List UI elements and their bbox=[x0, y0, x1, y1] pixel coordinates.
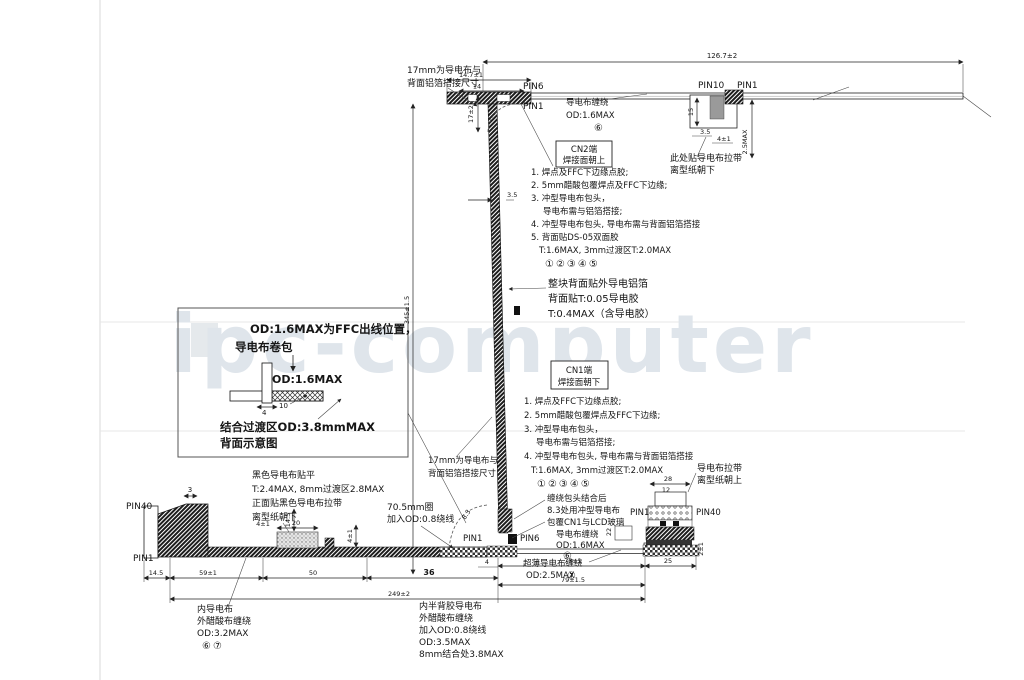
top-right-connector: PIN10 PIN1 15 2.5MAX 3.5 4±1 bbox=[687, 81, 758, 158]
inset-dim-4: 4 bbox=[262, 409, 267, 417]
cn2-box-1: CN2端 bbox=[571, 144, 598, 155]
wrap-note-mid-1: 导电布缠绕 bbox=[556, 529, 599, 540]
black-note-2: T:2.4MAX, 8mm过渡区2.8MAX bbox=[251, 483, 384, 495]
black-note-4: 离型纸朝下 bbox=[252, 511, 297, 523]
inset-caption: 背面示意图 bbox=[220, 436, 278, 450]
note-17mm-bottom-1: 17mm为导电布与 bbox=[428, 455, 498, 466]
cn2-marks: ①②③④⑤ bbox=[545, 259, 600, 270]
inner-note-2: 外醋酸布缠绕 bbox=[197, 615, 251, 627]
black-note-1: 黑色导电布贴平 bbox=[252, 469, 315, 481]
grid-pad bbox=[277, 532, 318, 548]
join-note-2: 8.3处用冲型导电布 bbox=[547, 505, 620, 516]
pin6-top-label: PIN6 bbox=[523, 82, 544, 92]
dim-d50: 50 bbox=[309, 569, 317, 577]
pin6-mid-label: PIN6 bbox=[520, 534, 539, 544]
dim-d73: 73±1 bbox=[564, 557, 582, 565]
bottom-dim-chain: 14.5 59±1 50 36 4 73±1 25 79±1.5 249±2 bbox=[144, 556, 696, 603]
pin40-right-label: PIN40 bbox=[696, 508, 721, 518]
cn1-marks: ①②③④⑤ bbox=[537, 479, 592, 490]
small-pad bbox=[325, 538, 334, 549]
dim-d4: 4 bbox=[485, 558, 489, 566]
pin40-left-label: PIN40 bbox=[126, 502, 153, 512]
bottom-assembly: 3 PIN40 PIN1 14.5 20 4±1 4±1 黑色导电布贴平 T:2… bbox=[126, 462, 742, 660]
pull-note-bottom-1: 导电布拉带 bbox=[697, 462, 742, 474]
pull-note-top-2: 离型纸朝下 bbox=[670, 164, 715, 176]
black-note-3: 正面贴黑色导电布拉带 bbox=[252, 497, 342, 509]
pin1-mid-label: PIN1 bbox=[463, 534, 482, 544]
cn1-note-3b: 导电布需与铝箔搭接; bbox=[536, 437, 615, 448]
dim-d22: 22 bbox=[605, 528, 613, 536]
cn2-note-3: 3. 冲型导电布包头， bbox=[531, 193, 610, 204]
cn2-box-2: 焊接面朝上 bbox=[563, 155, 606, 166]
cn1-box-1: CN1端 bbox=[566, 365, 593, 376]
bottom-right-connector: 28 12 PIN1 PIN40 22 2±1 bbox=[605, 475, 721, 556]
cn1-note-2: 2. 5mm醋酸包覆焊点及FFC下边缘; bbox=[524, 410, 660, 421]
cn1-box-2: 焊接面朝下 bbox=[558, 377, 601, 388]
dim-right-35: 3.5 bbox=[700, 128, 710, 136]
half-note-2: 外醋酸布缠绕 bbox=[419, 612, 473, 624]
dim-strip-t: 3.5 bbox=[507, 191, 517, 199]
cn1-note-t: T:1.6MAX, 3mm过渡区T:2.0MAX bbox=[530, 465, 663, 476]
dim-d28: 28 bbox=[664, 475, 672, 483]
pull-note-bottom-2: 离型纸朝上 bbox=[697, 474, 742, 486]
half-note-5: 8mm结合处3.8MAX bbox=[419, 648, 504, 660]
dim-right-25max: 2.5MAX bbox=[741, 129, 749, 154]
dim-d59: 59±1 bbox=[199, 569, 217, 577]
inset-od: OD:1.6MAX bbox=[272, 373, 343, 386]
dim-right-15: 15 bbox=[687, 108, 695, 116]
inset-title-2: 导电布卷包 bbox=[235, 340, 293, 354]
note-17mm-top-2: 背面铝箔搭接尺寸 bbox=[407, 77, 479, 89]
dim-d41b: 4±1 bbox=[346, 529, 354, 543]
drawing-sheet: ipc-computer 126.7±2 14.7±1 14 17±2 3.5 bbox=[0, 0, 1024, 680]
foil-line-3: T:0.4MAX（含导电胶） bbox=[547, 307, 655, 320]
loop-note-1: 70.5mm圈 bbox=[387, 502, 434, 513]
cn2-notes: CN2端 焊接面朝上 1. 焊点及FFC下边缘点胶; 2. 5mm醋酸包覆焊点及… bbox=[521, 104, 701, 270]
dim-d79: 79±1.5 bbox=[561, 576, 585, 584]
pin1-top-right-label: PIN1 bbox=[737, 81, 758, 91]
pin1-left-label: PIN1 bbox=[133, 554, 154, 564]
dim-overall-height: 345±1.5 bbox=[403, 296, 411, 324]
flex-cable-drawing: ipc-computer 126.7±2 14.7±1 14 17±2 3.5 bbox=[0, 0, 1024, 680]
join-note-3: 包覆CN1与LCD玻璃 bbox=[547, 517, 625, 528]
dim-d21: 2±1 bbox=[697, 542, 705, 556]
dim-d25: 25 bbox=[664, 557, 672, 565]
cn2-note-4: 4. 冲型导电布包头, 导电布需与背面铝箔搭接 bbox=[531, 219, 701, 230]
wrap-mark-top: ⑥ bbox=[594, 123, 605, 134]
cn2-note-1: 1. 焊点及FFC下边缘点胶; bbox=[531, 167, 628, 178]
wrap-note-mid-2: OD:1.6MAX bbox=[556, 541, 605, 551]
dim-top-h: 17±2 bbox=[467, 105, 475, 123]
pull-tab bbox=[655, 492, 686, 506]
pull-note-top-1: 此处贴导电布拉带 bbox=[670, 152, 742, 164]
foil-line-1: 整块背面贴外导电铝箔 bbox=[548, 277, 648, 290]
wrap-note-top-1: 导电布缠绕 bbox=[566, 97, 609, 108]
half-note-3: 加入OD:0.8绕线 bbox=[419, 624, 486, 636]
inset-dim-10: 10 bbox=[279, 402, 288, 410]
dim-right-41: 4±1 bbox=[717, 135, 731, 143]
inset-transition: 结合过渡区OD:3.8mmMAX bbox=[219, 420, 375, 434]
dim-top-overall: 126.7±2 bbox=[707, 52, 737, 60]
inset-title-1: OD:1.6MAX为FFC出线位置， bbox=[250, 322, 417, 336]
pin1-top-left-label: PIN1 bbox=[523, 102, 544, 112]
dim-d36: 36 bbox=[423, 568, 435, 577]
left-connector bbox=[158, 504, 208, 557]
wrap-note-top-2: OD:1.6MAX bbox=[566, 111, 615, 121]
half-note-4: OD:3.5MAX bbox=[419, 638, 470, 648]
cn1-note-4: 4. 冲型导电布包头, 导电布需与背面铝箔搭接 bbox=[524, 451, 694, 462]
cn2-note-5: 5. 背面贴DS-05双面胶 bbox=[531, 232, 619, 243]
inner-note-1: 内导电布 bbox=[197, 603, 233, 615]
half-note-1: 内半背胶导电布 bbox=[419, 600, 482, 612]
cn2-note-t: T:1.6MAX, 3mm过渡区T:2.0MAX bbox=[538, 245, 671, 256]
pin10-label: PIN10 bbox=[698, 81, 725, 91]
cable-end-leader bbox=[963, 96, 991, 117]
dim-d145a: 14.5 bbox=[149, 569, 163, 577]
pin1-right-label: PIN1 bbox=[630, 508, 649, 518]
note-17mm-top-1: 17mm为导电布与 bbox=[407, 64, 481, 76]
cn1-note-1: 1. 焊点及FFC下边缘点胶; bbox=[524, 396, 621, 407]
cn2-connector bbox=[447, 92, 531, 104]
dim-d3: 3 bbox=[188, 486, 192, 494]
cn2-note-2: 2. 5mm醋酸包覆焊点及FFC下边缘; bbox=[531, 180, 667, 191]
pin-row bbox=[648, 506, 692, 520]
loop-note-2: 加入OD:0.8绕线 bbox=[387, 513, 454, 525]
foil-line-2: 背面贴T:0.05导电胶 bbox=[548, 292, 639, 305]
cn1-note-3: 3. 冲型导电布包头， bbox=[524, 424, 603, 435]
note-17mm-bottom-2: 背面铝箔搭接尺寸 bbox=[428, 468, 497, 479]
inner-note-3: OD:3.2MAX bbox=[197, 629, 248, 639]
foil-mark bbox=[514, 306, 520, 315]
cn2-note-3b: 导电布需与铝箔搭接; bbox=[543, 206, 622, 217]
join-note-1: 缠绕包头结合后 bbox=[547, 493, 607, 504]
inner-marks: ⑥⑦ bbox=[202, 641, 224, 652]
left-connector-tab bbox=[144, 506, 158, 558]
dim-d249: 249±2 bbox=[388, 590, 410, 598]
